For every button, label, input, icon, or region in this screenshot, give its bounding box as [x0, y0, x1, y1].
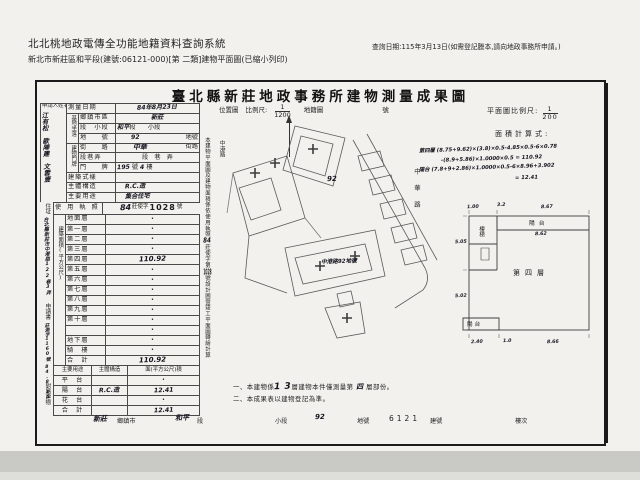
floor-row-value: •	[106, 235, 200, 245]
plan-dim: 2.40	[471, 340, 483, 345]
attachment-row-use: 花 台	[54, 396, 92, 406]
document-subtitle: 新北市新莊區和平段(建號:06121-000)[第 二類]建物平面圖(已縮小列印…	[28, 54, 288, 65]
floor-row-value: •	[106, 265, 200, 275]
plan-dim: 1.00	[467, 205, 479, 210]
form-title: 臺北縣新莊地政事務所建物測量成果圖	[37, 85, 604, 105]
usage-value: 集合住宅	[125, 194, 150, 201]
left-vertical-strip: 住址 台北縣新莊市中港路122巷3弄 申請書 莊測字1160號 84.8.15 …	[40, 202, 54, 413]
applicant-site-table: 申請人姓名 江有松 歐陣建 文雲壹 測量日期 84年8月23日 基地坐落 鄉鎮市…	[40, 103, 200, 203]
plate-street-value: 中華	[133, 144, 147, 151]
plan-scale: 平面圖比例尺: 1 200	[487, 106, 558, 122]
plan-balcony-dim: 8.62	[535, 232, 547, 237]
plan-balcony-top-label: 陽台	[529, 218, 549, 227]
survey-date-value: 84年8月23日	[137, 105, 177, 113]
structure-label: 主體構造	[67, 183, 116, 193]
sheet-number-label: 號	[382, 104, 389, 114]
system-title: 北北桃地政電傳全功能地籍資料查詢系統	[28, 36, 226, 51]
floor-plan: 陽台 8.62 樓梯 第四層 陽台 1.00 3.2 8.67 5.05 5.0…	[455, 194, 605, 370]
plan-stairs-label: 樓梯	[477, 226, 485, 260]
plan-floor-label: 第四層	[513, 268, 549, 278]
table-row: 申請人姓名 江有松 歐陣建 文雲壹 測量日期 84年8月23日	[41, 104, 200, 114]
note-post: 號設計圖暨竣工平面圖轉繪計算	[204, 275, 210, 358]
location-scale-label: 比例尺:	[246, 104, 268, 114]
floor-area-table: 建築面積(平方公尺) 地面層 • 第一層• 第二層• 第三層• 第四層 110.…	[53, 214, 200, 366]
floor-row-label: 第六層	[66, 275, 106, 285]
plate-lane-print: 段 巷 弄	[116, 153, 200, 163]
floor-row-label: 第一層	[66, 225, 106, 235]
map-bottom-label: 中港路92地號	[321, 256, 357, 265]
attachment-row-use: 平 台	[54, 376, 92, 386]
footer-section-label: 段	[197, 416, 203, 425]
floor-row-value: •	[106, 285, 200, 295]
plan-scale-denominator: 200	[542, 114, 557, 121]
attachment-row-area: •	[128, 376, 200, 386]
map-parcel-number: 92	[327, 175, 337, 183]
note1-floor: 四	[356, 382, 364, 392]
floor-row-value: •	[106, 245, 200, 255]
floor-row-label: 第五層	[66, 265, 106, 275]
plan-dim: 5.05	[455, 240, 467, 245]
site-section-value: 和平	[117, 125, 130, 132]
cadastral-sheet-label: 地籍圖	[304, 104, 324, 114]
attachment-row-structure	[92, 396, 128, 406]
floor-row-value: •	[106, 315, 200, 325]
style-label: 建築式樣	[67, 173, 116, 183]
style-value	[116, 173, 200, 183]
structure-value: R.C.造	[125, 184, 146, 191]
plan-dim: 8.67	[541, 205, 553, 210]
note-year: 84	[203, 237, 211, 244]
balcony-area-value: 12.41	[154, 387, 174, 394]
floor-row-label	[66, 326, 106, 336]
attachment-row-use: 陽 台	[54, 386, 92, 396]
plate-floor-value: 4	[140, 165, 145, 171]
plan-scale-label: 平面圖比例尺:	[487, 106, 538, 116]
applicant-label: 申請人姓名	[42, 104, 65, 110]
attachment-header-use: 主要用途	[54, 366, 92, 376]
plan-dim: 1.0	[503, 339, 512, 344]
site-section-print: 段 小段	[129, 124, 160, 131]
plan-dim: 3.2	[497, 203, 506, 208]
application-date: 84.8.15	[44, 365, 49, 383]
site-label: 基地坐落	[70, 115, 75, 141]
application-number: 莊測字1160號	[43, 323, 49, 365]
site-section-label: 段 小段	[79, 123, 116, 133]
floor-row-label: 第四層	[66, 255, 106, 265]
floor-row-value: •	[106, 295, 200, 305]
note1-post: 層部份。	[366, 383, 394, 391]
floor-row-value: •	[106, 346, 200, 356]
calc-line: = 12.41	[515, 173, 538, 183]
plan-dim: 8.66	[547, 340, 559, 345]
attachment-total-label: 合 計	[54, 406, 92, 416]
floor-total-value: 110.92	[139, 357, 166, 365]
note1-pre: 一、本建物係	[233, 383, 274, 391]
note-line-1: 一、本建物係1 3層建物本件僅測量第 四 層部份。	[233, 382, 394, 392]
license-basis-note: 本建物平面圖及建物面積係依使用執照84莊使字第1028號設計圖暨竣工平面圖轉繪計…	[203, 137, 212, 389]
floor-row-label: 第三層	[66, 245, 106, 255]
query-date: 查詢日期:115年3月13日(如需登記謄本,請向地政事務所申請。)	[372, 41, 561, 51]
usage-label: 主要用途	[67, 193, 116, 203]
floor-area-label: 建築面積(平方公尺)	[57, 226, 62, 354]
plan-dim: 5.02	[455, 294, 467, 299]
attachment-total-value: 12.41	[154, 407, 174, 414]
footer-building-label: 建號	[430, 416, 442, 425]
attachment-row-structure	[92, 376, 128, 386]
site-district-label: 鄉鎮市區	[79, 113, 116, 123]
floor-row-value: •	[106, 336, 200, 346]
attachment-header-area: 面(平方公尺)積	[128, 366, 200, 376]
site-district-value: 新莊	[151, 115, 164, 122]
attachment-table: 主要用途 主體構造 面(平方公尺)積 平 台 • 陽 台 R.C.造 12.41…	[53, 365, 200, 416]
attachment-row-area: •	[128, 396, 200, 406]
attachment-row-structure: R.C.造	[99, 387, 120, 394]
attachment-header-structure: 主體構造	[92, 366, 128, 376]
site-parcel-print: 地號	[186, 135, 198, 141]
floor-row-label: 第十層	[66, 315, 106, 325]
application-label: 申請書	[44, 303, 50, 323]
floor4-area-value: 110.92	[139, 256, 166, 264]
floor-row-label: 第二層	[66, 235, 106, 245]
floor-row-label: 騎 樓	[66, 346, 106, 356]
scanned-document-page: 北北桃地政電傳全功能地籍資料查詢系統 查詢日期:115年3月13日(如需登記謄本…	[0, 0, 640, 480]
note-mid: 莊使字第	[204, 244, 210, 268]
plate-number-value: 195	[117, 164, 130, 171]
license-label: 使 用 執 照	[53, 202, 103, 214]
footer-parcel-label: 地號	[357, 416, 369, 425]
plate-number-label: 門 牌	[79, 163, 116, 173]
license-year: 84	[119, 204, 130, 212]
floor-row-label: 第八層	[66, 295, 106, 305]
area-calc-label: 面積計算式:	[495, 129, 550, 139]
scan-band	[0, 451, 640, 472]
footer-building-number: 6121	[389, 414, 420, 423]
footer-section-value: 和平	[175, 413, 189, 423]
footer-town-value: 新莊	[93, 414, 107, 424]
residence-label: 住址	[44, 203, 50, 217]
plate-street-label: 街 路	[79, 143, 116, 153]
floor-row-label: 地下層	[66, 336, 106, 346]
note1-floor-count: 1 3	[274, 382, 292, 393]
scan-band-lower	[0, 472, 640, 480]
floor-row-value: •	[106, 225, 200, 235]
location-map-label: 位置圖	[219, 104, 239, 114]
location-map-sketch	[225, 118, 445, 373]
note-pre: 本建物平面圖及建物面積係依使用執照	[204, 137, 210, 237]
note1-mid: 層建物本件僅測量第	[292, 383, 354, 391]
footer-subsection-label: 小段	[275, 416, 287, 425]
floor-row-label: 地面層	[66, 215, 106, 225]
survey-date-label: 測量日期	[67, 104, 116, 114]
plate-lane-label: 段巷弄	[79, 153, 116, 163]
area-calc-block: 第四層 (8.75+9.62)×(3.8)×0.5-4.85×0.5-6×0.7…	[419, 145, 611, 183]
footer-town-label: 鄉鎮市	[117, 416, 136, 425]
plate-street-print: 街路	[186, 144, 198, 150]
license-mid: 莊使字	[132, 205, 149, 211]
site-parcel-label: 地 號	[79, 133, 116, 143]
applicant-names: 江有松 歐陣建 文雲壹	[41, 112, 50, 180]
note-line-2: 二、本成果表以建物登記為準。	[233, 394, 329, 403]
plan-scale-fraction: 1 200	[542, 106, 557, 122]
plate-label: 建物門牌	[70, 145, 75, 171]
map-road-left-label: 中港路	[217, 140, 226, 184]
plan-balcony-bottom-label: 陽台	[467, 320, 482, 328]
residence-value: 台北縣新莊市中港路122巷3弄	[43, 217, 51, 303]
floor-row-value: •	[106, 305, 200, 315]
left-data-panel: 申請人姓名 江有松 歐陣建 文雲壹 測量日期 84年8月23日 基地坐落 鄉鎮市…	[40, 103, 199, 413]
license-number: 1028	[150, 204, 176, 212]
floor-row-value: •	[106, 215, 200, 225]
plate-floor-unit: 樓	[146, 164, 152, 171]
license-post: 號	[177, 205, 183, 211]
survey-form: 臺北縣新莊地政事務所建物測量成果圖 申請人姓名 江有松 歐陣建 文雲壹 測量日期…	[35, 80, 606, 446]
footer-parcel-value: 92	[315, 413, 325, 421]
footer-floor-label: 樓次	[515, 416, 527, 425]
plate-number-unit: 號	[132, 164, 138, 171]
floor-row-label: 第九層	[66, 305, 106, 315]
floor-row-value: •	[106, 326, 200, 336]
floor-row-label: 第七層	[66, 285, 106, 295]
site-parcel-value: 92	[131, 135, 140, 142]
floor-row-value: •	[106, 275, 200, 285]
